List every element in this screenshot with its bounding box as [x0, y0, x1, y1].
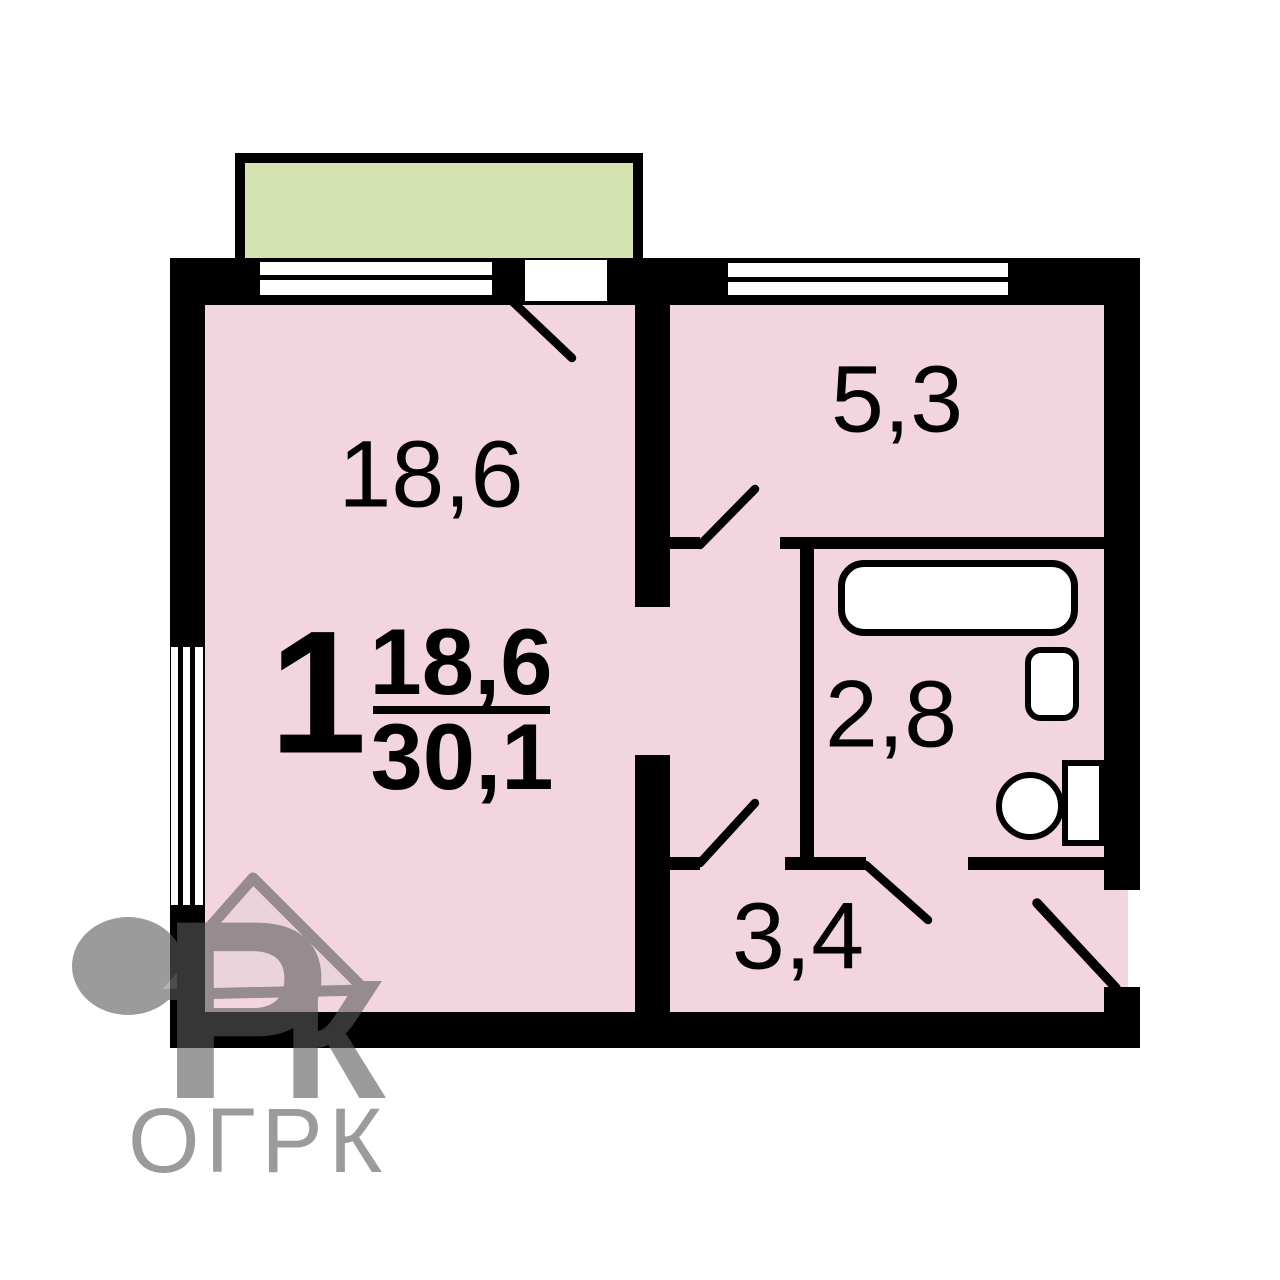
watermark-agency-name: ОГРК: [128, 1090, 388, 1192]
floor-plan: 18,6 5,3 2,8 3,4 1 18,6 30,1 Р К ОГРК: [0, 0, 1280, 1280]
watermark-layer: Р К ОГРК: [0, 0, 1280, 1280]
